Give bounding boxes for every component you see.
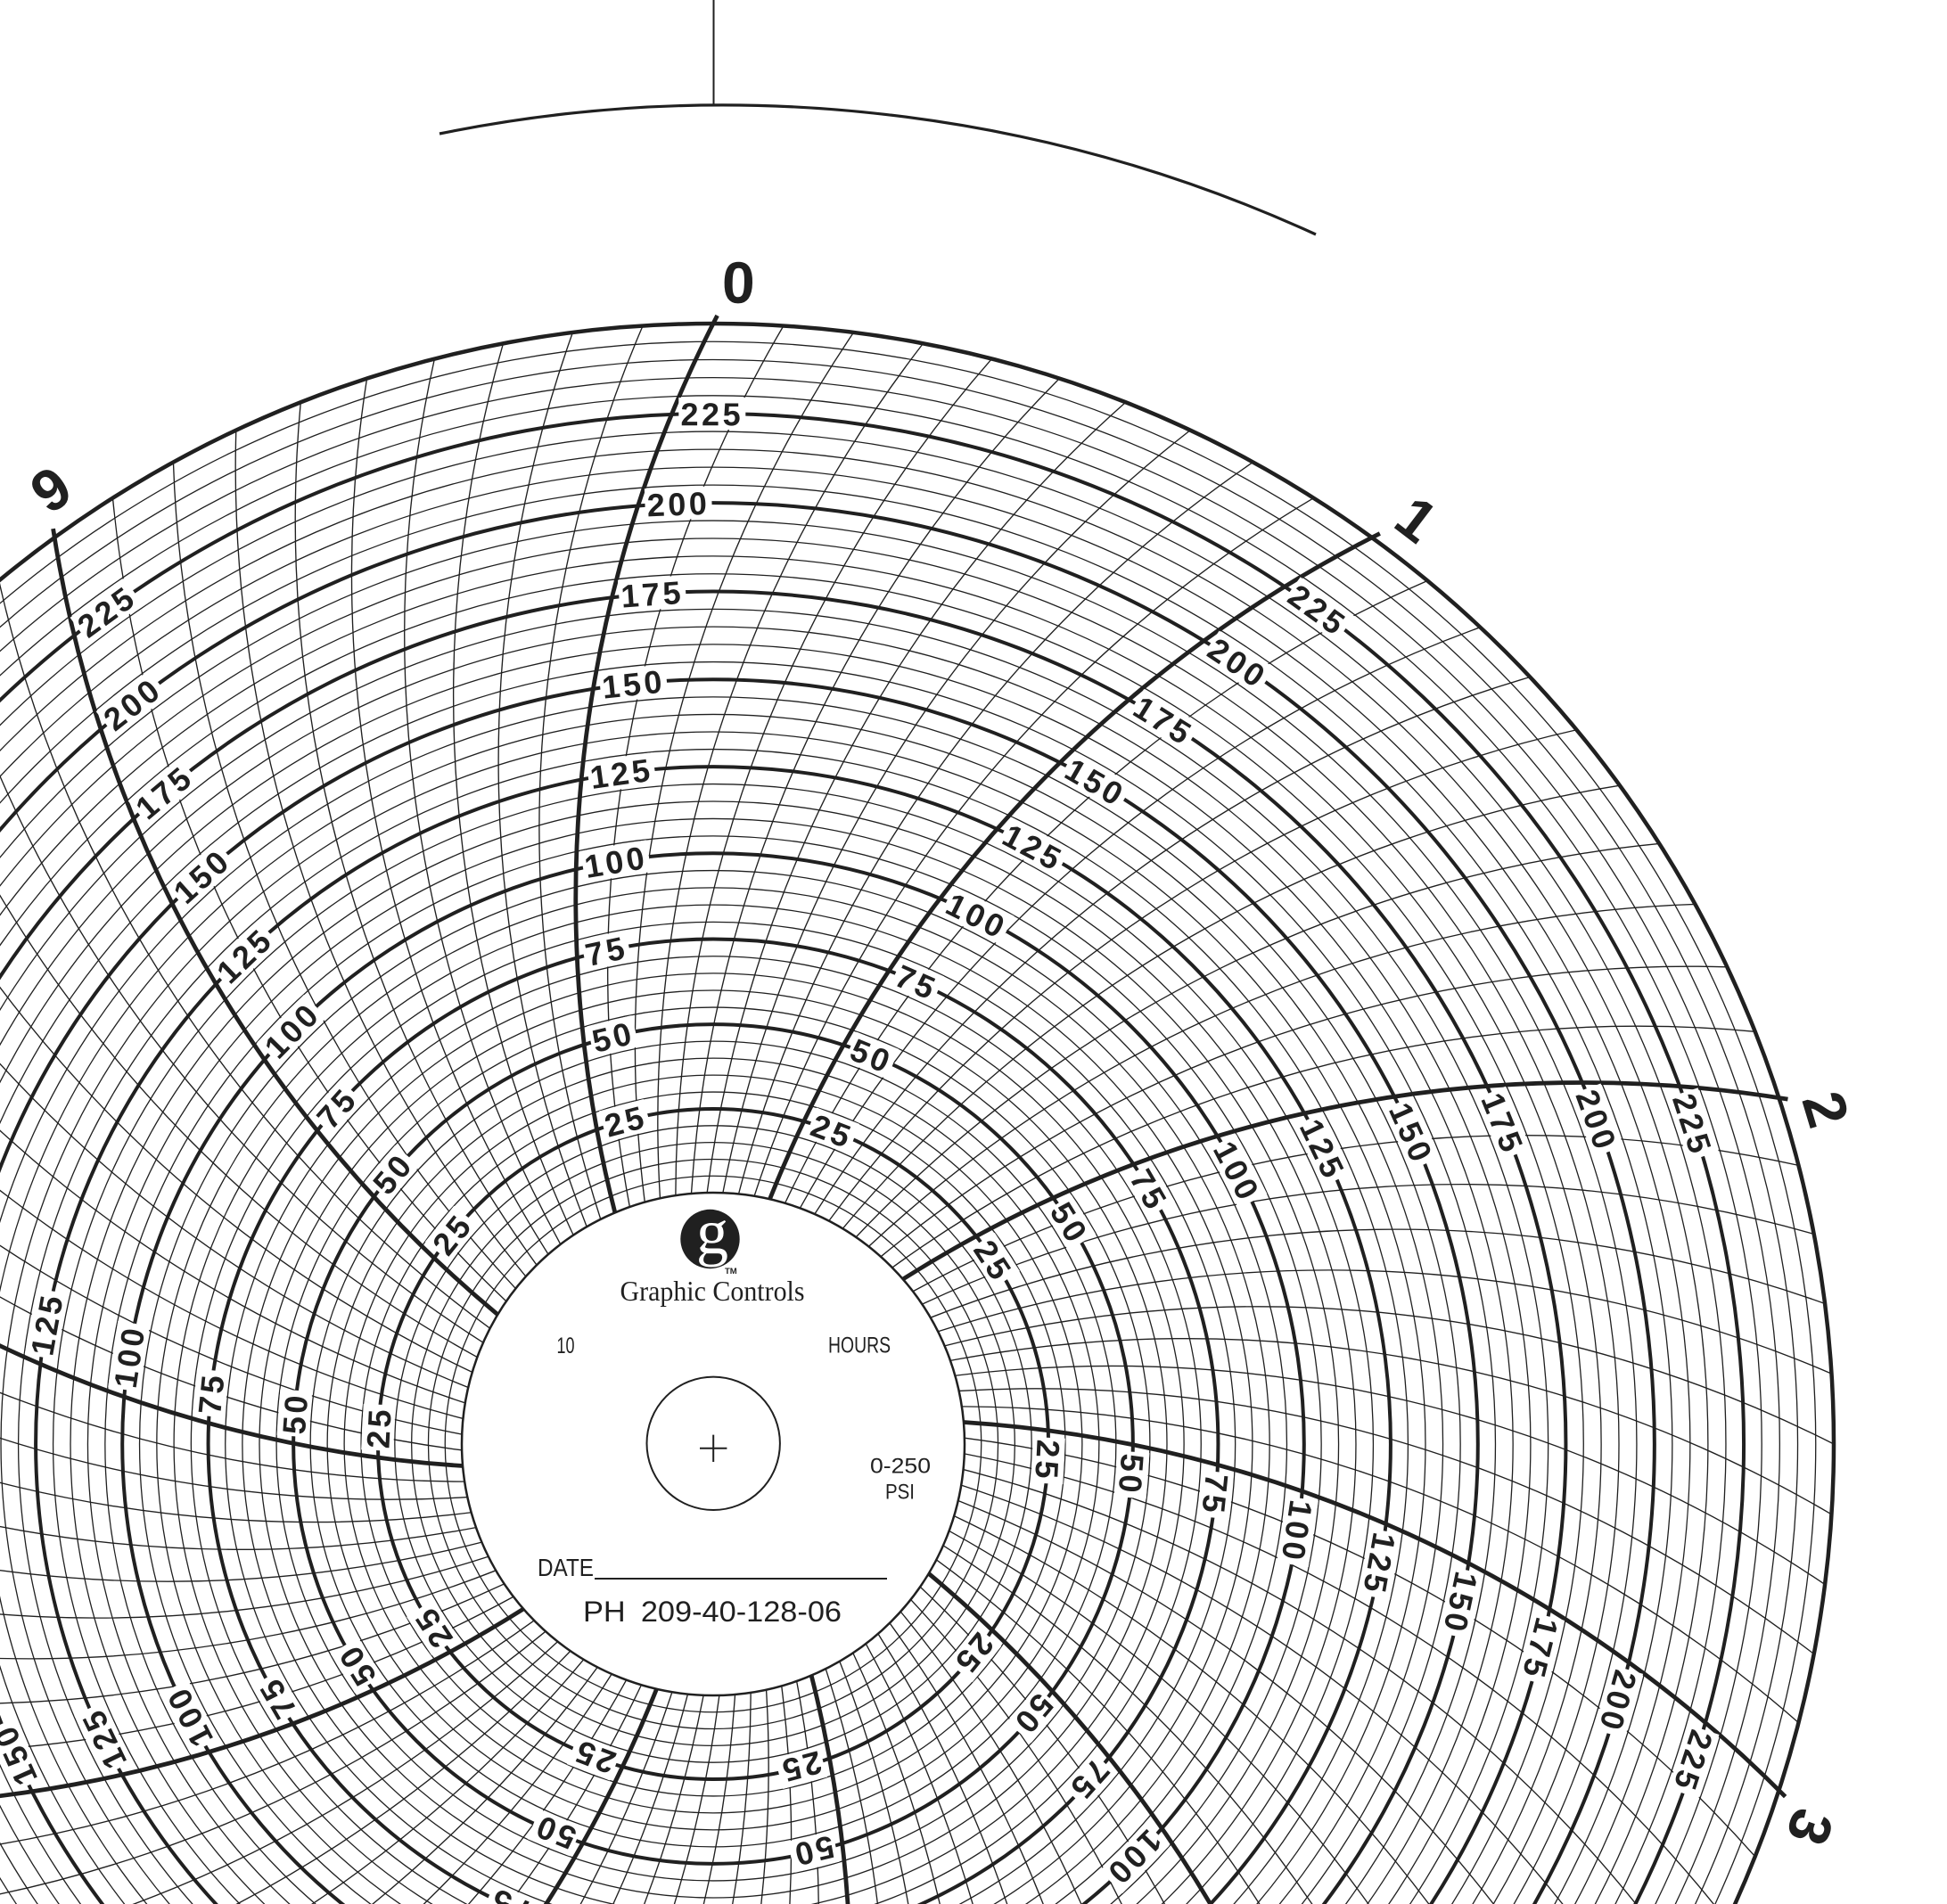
svg-text:75: 75 [1195, 1472, 1236, 1517]
svg-text:25: 25 [1028, 1439, 1066, 1482]
svg-text:50: 50 [275, 1391, 315, 1436]
svg-text:75: 75 [191, 1371, 232, 1416]
svg-text:HOURS: HOURS [828, 1333, 891, 1358]
svg-text:175: 175 [620, 574, 685, 615]
svg-text:50: 50 [1112, 1452, 1151, 1497]
svg-text:PH 209-40-128-06: PH 209-40-128-06 [583, 1596, 842, 1628]
svg-text:0: 0 [721, 249, 755, 316]
svg-text:150: 150 [600, 663, 666, 706]
svg-text:PSI: PSI [885, 1481, 915, 1505]
svg-text:225: 225 [680, 396, 743, 432]
svg-text:DATE: DATE [538, 1554, 594, 1581]
svg-text:25: 25 [359, 1406, 398, 1449]
svg-text:10: 10 [557, 1334, 575, 1358]
svg-text:Graphic Controls: Graphic Controls [620, 1275, 805, 1307]
svg-text:200: 200 [646, 485, 711, 524]
svg-text:0-250: 0-250 [870, 1454, 931, 1478]
